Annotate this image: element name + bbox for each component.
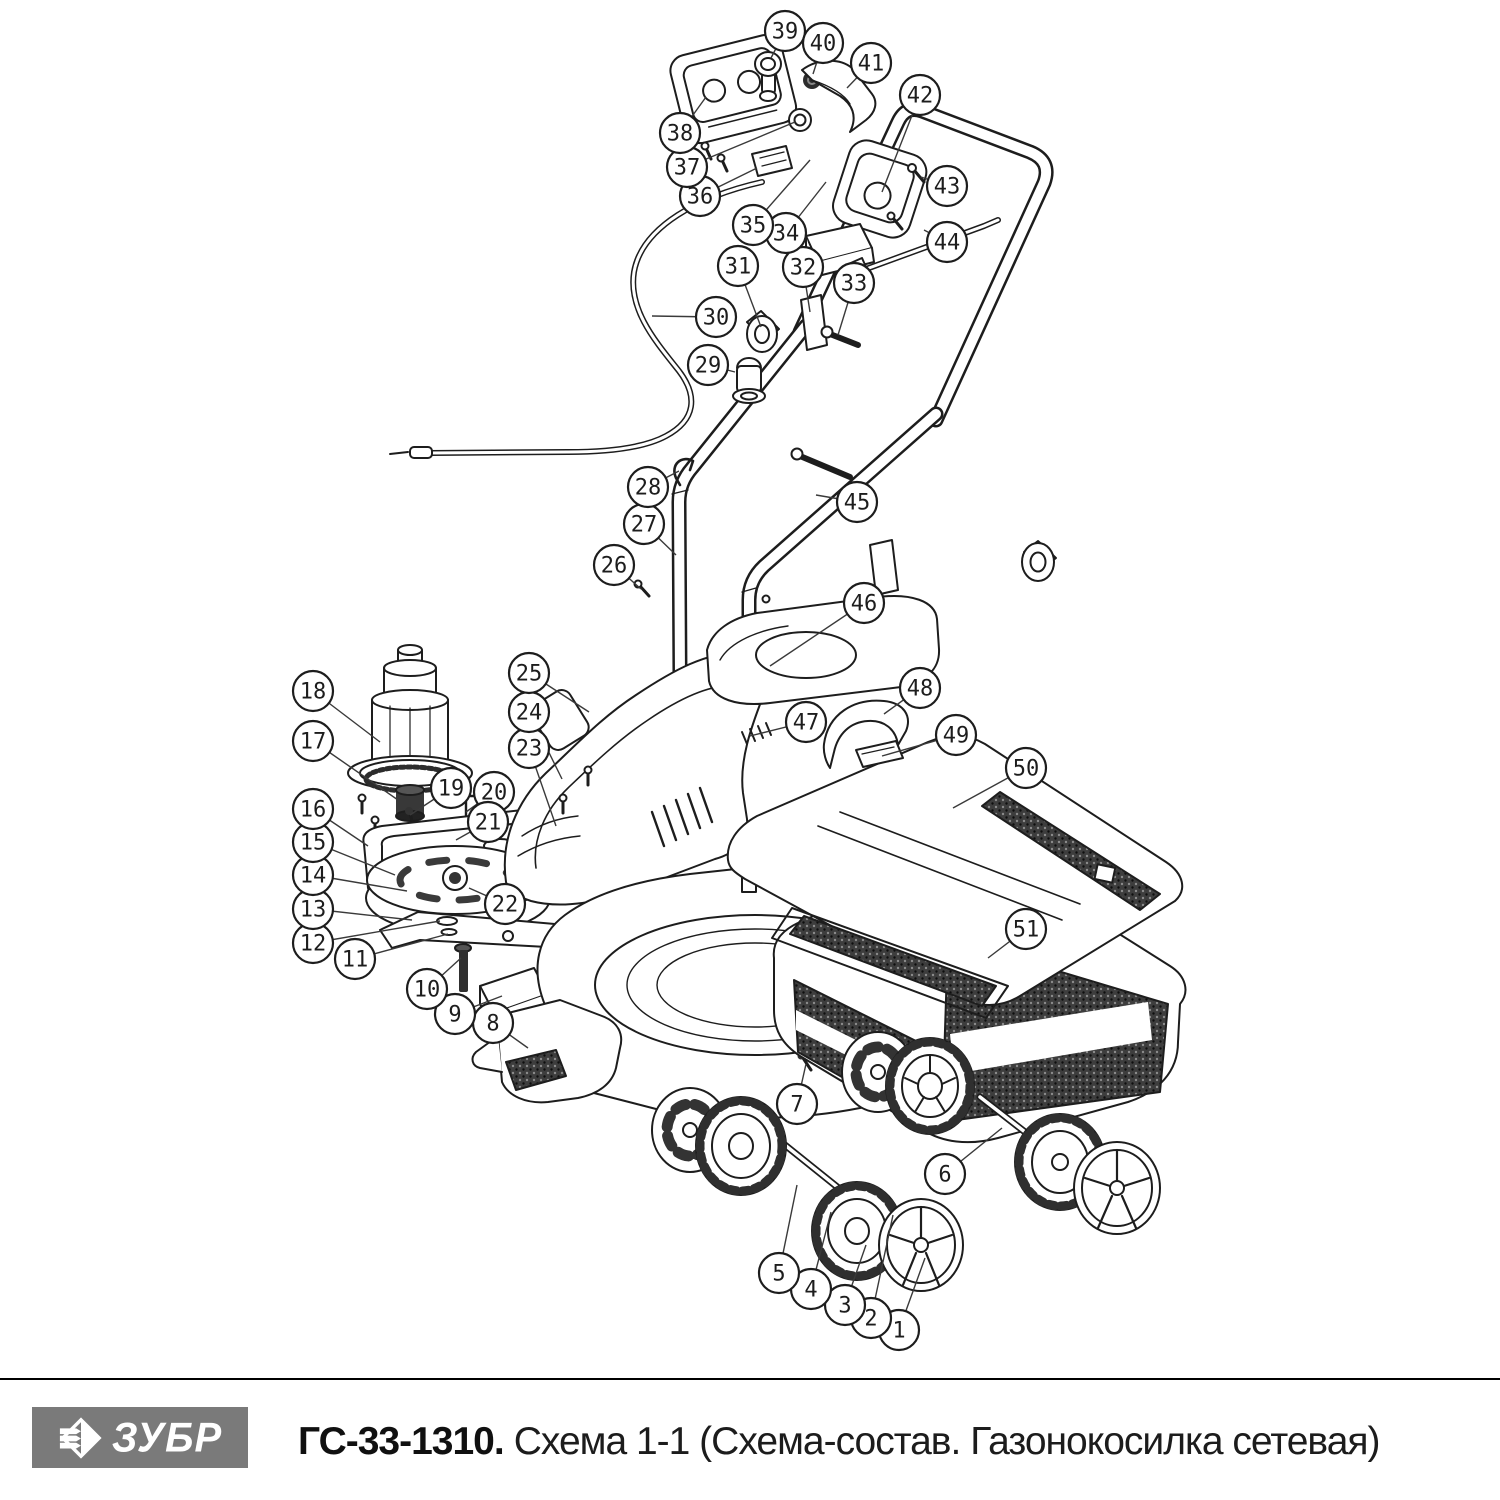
svg-text:8: 8 (486, 1012, 499, 1037)
callout-11: 11 (335, 939, 375, 979)
svg-text:51: 51 (1013, 918, 1040, 943)
brand-name: ЗУБР (112, 1417, 222, 1459)
svg-text:3: 3 (838, 1294, 851, 1319)
svg-text:29: 29 (695, 354, 722, 379)
callout-46: 46 (844, 583, 884, 623)
svg-text:44: 44 (934, 231, 961, 256)
callout-33: 33 (834, 263, 874, 303)
callout-21: 21 (468, 802, 508, 842)
callout-17: 17 (293, 721, 333, 761)
exploded-parts-diagram: 1234567891011121314151617181920212223242… (0, 0, 1500, 1500)
callout-35: 35 (733, 205, 773, 245)
svg-text:2: 2 (864, 1307, 877, 1332)
footer-divider (0, 1378, 1500, 1380)
callout-42: 42 (900, 75, 940, 115)
spare-right-wheels-drawing (1015, 1114, 1160, 1234)
svg-text:27: 27 (631, 513, 658, 538)
svg-text:21: 21 (475, 811, 502, 836)
footer: ЗУБР ГС-33-1310.Схема 1-1 (Схема-состав.… (0, 1400, 1500, 1500)
svg-text:23: 23 (516, 737, 543, 762)
callout-6: 6 (925, 1154, 965, 1194)
svg-text:12: 12 (300, 932, 327, 957)
svg-text:6: 6 (938, 1163, 951, 1188)
svg-text:47: 47 (793, 711, 820, 736)
svg-text:45: 45 (844, 491, 871, 516)
svg-text:40: 40 (810, 32, 837, 57)
callout-39: 39 (765, 11, 805, 51)
callout-31: 31 (718, 246, 758, 286)
svg-text:16: 16 (300, 798, 327, 823)
callout-26: 26 (594, 545, 634, 585)
svg-text:24: 24 (516, 701, 543, 726)
page: 1234567891011121314151617181920212223242… (0, 0, 1500, 1500)
callout-19: 19 (431, 768, 471, 808)
callout-18: 18 (293, 671, 333, 711)
cable-gland-drawing (789, 109, 811, 131)
svg-text:1: 1 (892, 1319, 905, 1344)
svg-text:43: 43 (934, 175, 961, 200)
svg-text:30: 30 (703, 306, 730, 331)
svg-text:49: 49 (943, 724, 970, 749)
callout-49: 49 (936, 715, 976, 755)
callout-41: 41 (851, 43, 891, 83)
callout-30: 30 (696, 297, 736, 337)
callout-22: 22 (485, 884, 525, 924)
svg-text:18: 18 (300, 680, 327, 705)
svg-text:14: 14 (300, 864, 327, 889)
callout-5: 5 (759, 1253, 799, 1293)
callout-51: 51 (1006, 909, 1046, 949)
svg-text:38: 38 (667, 122, 694, 147)
callout-40: 40 (803, 23, 843, 63)
svg-text:39: 39 (772, 20, 799, 45)
svg-text:50: 50 (1013, 757, 1040, 782)
svg-text:9: 9 (448, 1003, 461, 1028)
callout-23: 23 (509, 728, 549, 768)
callout-45: 45 (837, 482, 877, 522)
spare-front-wheels-drawing (812, 1182, 963, 1291)
svg-text:5: 5 (772, 1262, 785, 1287)
callout-48: 48 (900, 668, 940, 708)
svg-text:17: 17 (300, 730, 327, 755)
front-wheels-drawing (652, 1088, 786, 1195)
screw-26-drawing (635, 581, 650, 597)
callout-25: 25 (509, 653, 549, 693)
model-code: ГС-33-1310. (298, 1420, 504, 1463)
bumper-29-drawing (733, 358, 765, 403)
svg-text:11: 11 (342, 948, 369, 973)
svg-text:41: 41 (858, 52, 885, 77)
callout-38: 38 (660, 113, 700, 153)
callout-16: 16 (293, 789, 333, 829)
svg-text:19: 19 (438, 777, 465, 802)
svg-text:4: 4 (804, 1278, 817, 1303)
svg-text:26: 26 (601, 554, 628, 579)
svg-text:35: 35 (740, 214, 767, 239)
callout-10: 10 (407, 969, 447, 1009)
svg-text:28: 28 (635, 476, 662, 501)
svg-text:37: 37 (674, 156, 701, 181)
callout-24: 24 (509, 692, 549, 732)
caption-text: Схема 1-1 (Схема-состав. Газонокосилка с… (514, 1420, 1380, 1463)
diagram-caption: ГС-33-1310.Схема 1-1 (Схема-состав. Газо… (298, 1420, 1380, 1464)
svg-text:15: 15 (300, 831, 327, 856)
callout-7: 7 (777, 1084, 817, 1124)
callout-28: 28 (628, 467, 668, 507)
cable-clip-drawing (752, 146, 792, 176)
svg-text:36: 36 (687, 185, 714, 210)
svg-text:10: 10 (414, 978, 441, 1003)
callout-47: 47 (786, 702, 826, 742)
svg-text:7: 7 (790, 1093, 803, 1118)
svg-text:13: 13 (300, 898, 327, 923)
callout-37: 37 (667, 147, 707, 187)
callout-29: 29 (688, 345, 728, 385)
svg-text:32: 32 (790, 256, 817, 281)
svg-text:25: 25 (516, 662, 543, 687)
callout-43: 43 (927, 166, 967, 206)
svg-text:48: 48 (907, 677, 934, 702)
callout-8: 8 (473, 1003, 513, 1043)
callout-27: 27 (624, 504, 664, 544)
svg-text:31: 31 (725, 255, 752, 280)
brand-logo: ЗУБР (32, 1407, 248, 1468)
svg-text:33: 33 (841, 272, 868, 297)
svg-text:46: 46 (851, 592, 878, 617)
rear-wheels-drawing (842, 1032, 974, 1134)
svg-text:34: 34 (773, 222, 800, 247)
zubr-logo-icon (58, 1415, 104, 1461)
callout-50: 50 (1006, 748, 1046, 788)
svg-text:22: 22 (492, 893, 519, 918)
callout-44: 44 (927, 222, 967, 262)
svg-text:42: 42 (907, 84, 934, 109)
